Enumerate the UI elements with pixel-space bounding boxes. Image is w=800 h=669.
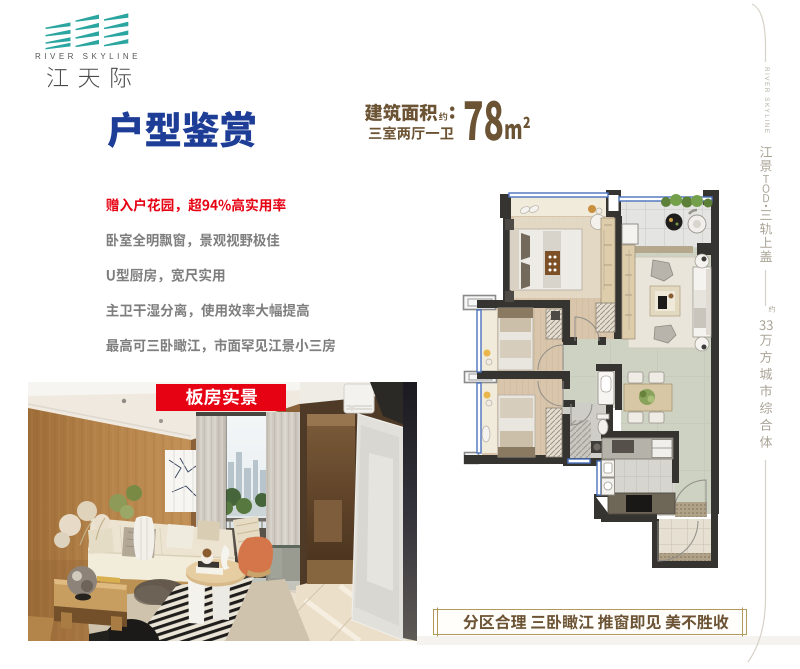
svg-text:RIVER SKYLINE: RIVER SKYLINE — [35, 52, 141, 61]
svg-text:RIVER SKYLINE: RIVER SKYLINE — [763, 67, 770, 135]
